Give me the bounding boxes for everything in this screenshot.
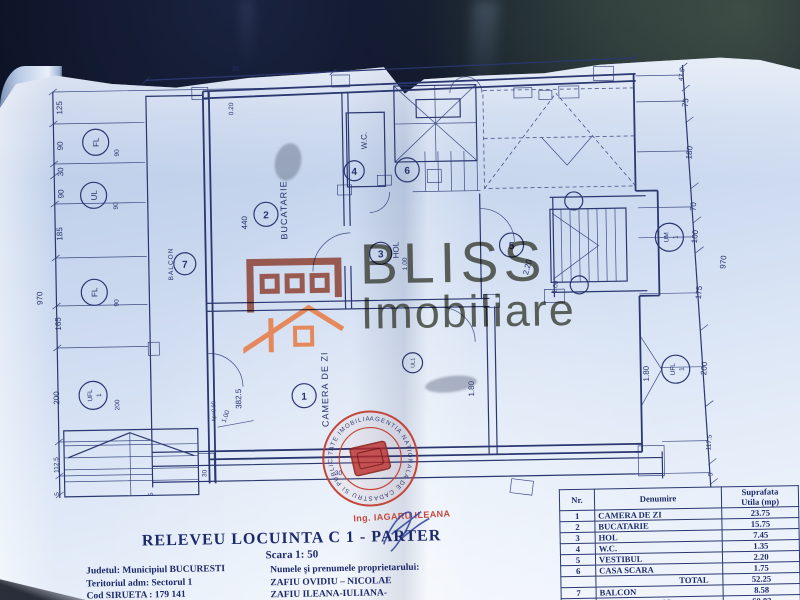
marker-ul: UL (90, 190, 99, 201)
marker-ufl-nr: 1 (96, 393, 103, 397)
owner-name: ZAFIU ILEANA-IULIANA- (271, 587, 420, 600)
cell-nr: 7 (561, 587, 596, 599)
dim-label: 117.5 (705, 434, 713, 451)
dim-label: 90 (113, 202, 120, 210)
dim-label: 30 (201, 469, 208, 477)
cell-nr: 2 (560, 521, 595, 533)
admin-line: Cod SIRUETA : 179 141 (86, 588, 225, 600)
round-stamp: AGENTIA NATIONALA DE CADASTRU SI PUBLICI… (317, 406, 423, 512)
room-label-balcony: BALCON (168, 248, 176, 281)
dim-label: 180 (684, 145, 694, 160)
dim-label: 70 (689, 201, 699, 211)
watermark: BLISS Imobiliare (242, 243, 584, 359)
dim-parapet: hp=0.90 (211, 401, 217, 421)
marker-ufl-nr: 1 (679, 367, 686, 371)
dim-kitchen-height: 440 (240, 215, 249, 229)
dim-total-left: 970 (35, 291, 44, 305)
col-header-name: Denumire (594, 487, 722, 510)
dim-label: 185 (55, 227, 64, 241)
dim-label: 90 (56, 189, 65, 199)
dim-label: 90 (113, 299, 120, 307)
exterior-steps (64, 429, 199, 497)
watermark-text: BLISS Imobiliare (359, 231, 576, 337)
marker-fl: FL (90, 287, 99, 297)
dim-label: 0.20 (228, 102, 235, 115)
cell-nr: 1 (560, 510, 595, 522)
stairwell: 6 (394, 85, 481, 192)
dim-label: 5 (54, 492, 61, 496)
watermark-brand-sub: Imobiliare (360, 287, 576, 337)
marker-ul1: UL1 (410, 358, 416, 368)
dim-label: 200 (699, 361, 709, 376)
cell-nr (561, 576, 596, 588)
room-number-balcony: 7 (182, 260, 188, 271)
dim-label: 200 (52, 391, 61, 405)
cell-nr: 4 (560, 543, 595, 555)
room-label-wc: W.C. (360, 132, 369, 149)
cell-nr: 6 (561, 565, 596, 577)
dimension-line-top: 30 (142, 55, 639, 84)
marker-fl: FL (92, 137, 101, 147)
bliss-logo-icon (242, 253, 356, 359)
dimension-column-right: 47.5 75 180 70 100 175 200 117.5 5 970 U… (635, 62, 732, 488)
cell-nr: 3 (560, 532, 595, 544)
dim-label: 90 (56, 141, 65, 151)
owner-label: Numele şi prenumele proprietarului: (270, 562, 419, 577)
col-header-area: Suprafata Utila (mp) (721, 486, 798, 508)
dim-label: 200 (114, 399, 121, 410)
dim-label: 1.80 (642, 365, 651, 381)
dim-door-width: 1.00 (221, 409, 232, 424)
room-number-stairwell: 6 (404, 166, 410, 177)
dim-label: 165 (54, 317, 63, 331)
col-header-nr: Nr. (559, 489, 594, 511)
cell-area: 60.83 (723, 595, 800, 600)
room-number-wc: 4 (351, 167, 357, 178)
room-number-living: 1 (301, 392, 307, 403)
admin-line: Judetul: Municipiul BUCURESTI (86, 563, 225, 578)
dim-label: 100 (690, 229, 700, 244)
col-header-area-l2: Utila (mp) (725, 496, 795, 507)
dim-label: 125 (55, 101, 64, 115)
balcony-strip: 7 BALCON (146, 95, 209, 452)
admin-info: Judetul: Municipiul BUCURESTI Teritoriul… (86, 563, 225, 600)
marker-ufl: UFL (87, 389, 94, 402)
dim-label: 47.5 (678, 68, 687, 82)
photo-of-floor-plan: 125 90 30 90 185 165 200 112.5 5 970 FL … (0, 0, 800, 600)
dim-label: 75 (681, 97, 691, 107)
cell-nr: 5 (560, 554, 595, 566)
area-table: Nr. Denumire Suprafata Utila (mp) 1CAMER… (559, 485, 800, 600)
marker-um: UM (663, 232, 670, 242)
dim-total-right: 970 (718, 255, 728, 270)
dim-label: 175 (694, 285, 704, 300)
document-content: 125 90 30 90 185 165 200 112.5 5 970 FL … (0, 0, 800, 600)
marker-um-nr: 1 (672, 235, 679, 239)
dim-label: 30 (232, 66, 240, 73)
owner-info: Numele şi prenumele proprietarului: ZAFI… (270, 562, 420, 600)
marker-ufl: UFL (670, 363, 677, 376)
dim-label: 30 (56, 167, 65, 177)
dim-label: 112.5 (53, 457, 60, 473)
dim-label: 5 (707, 472, 714, 477)
dim-label: 90 (114, 149, 121, 157)
room-number-kitchen: 2 (263, 210, 269, 221)
dim-living-width: 382.5 (234, 388, 243, 409)
room-label-kitchen: BUCATARIE (278, 180, 289, 239)
